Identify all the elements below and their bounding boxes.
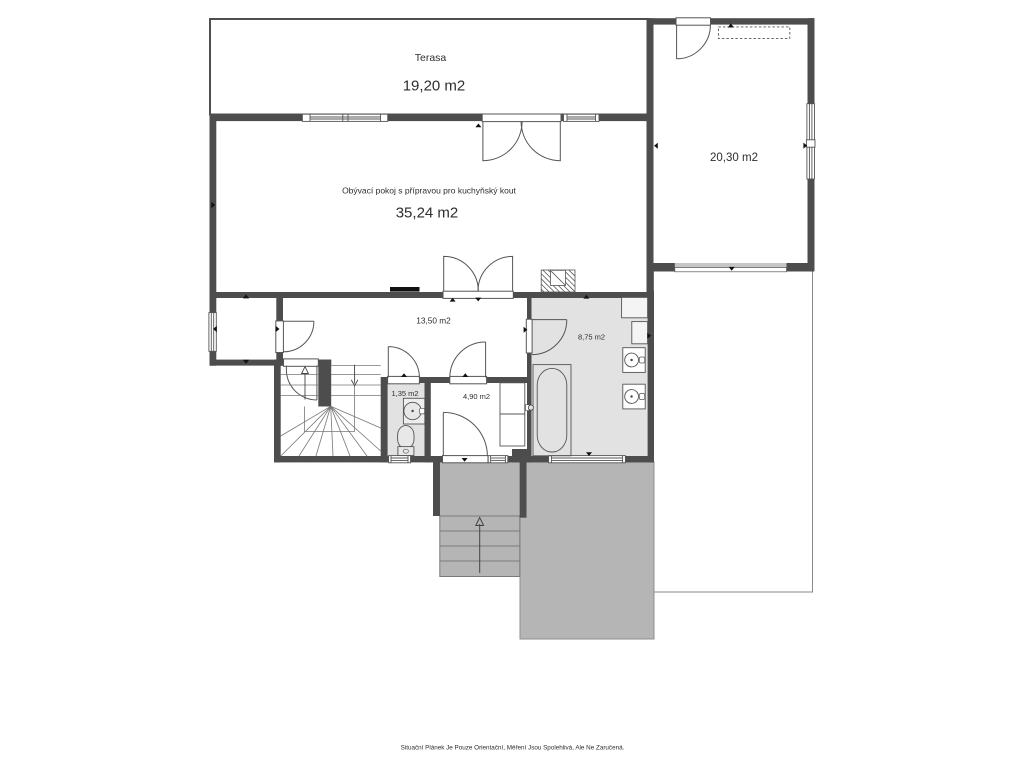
svg-text:20,30 m2: 20,30 m2 xyxy=(710,152,758,164)
svg-text:Situační Plánek Je Pouze Orien: Situační Plánek Je Pouze Orientační, Měř… xyxy=(401,745,625,752)
svg-text:35,24 m2: 35,24 m2 xyxy=(396,205,459,222)
svg-text:19,20 m2: 19,20 m2 xyxy=(403,78,466,95)
svg-text:13,50 m2: 13,50 m2 xyxy=(416,316,451,326)
svg-text:8,75 m2: 8,75 m2 xyxy=(578,333,605,342)
svg-text:4,90 m2: 4,90 m2 xyxy=(463,392,490,401)
svg-text:Terasa: Terasa xyxy=(415,52,447,64)
svg-text:1,35 m2: 1,35 m2 xyxy=(391,389,418,398)
svg-text:Obývací pokoj s přípravou pro: Obývací pokoj s přípravou pro kuchyňský … xyxy=(342,186,516,196)
